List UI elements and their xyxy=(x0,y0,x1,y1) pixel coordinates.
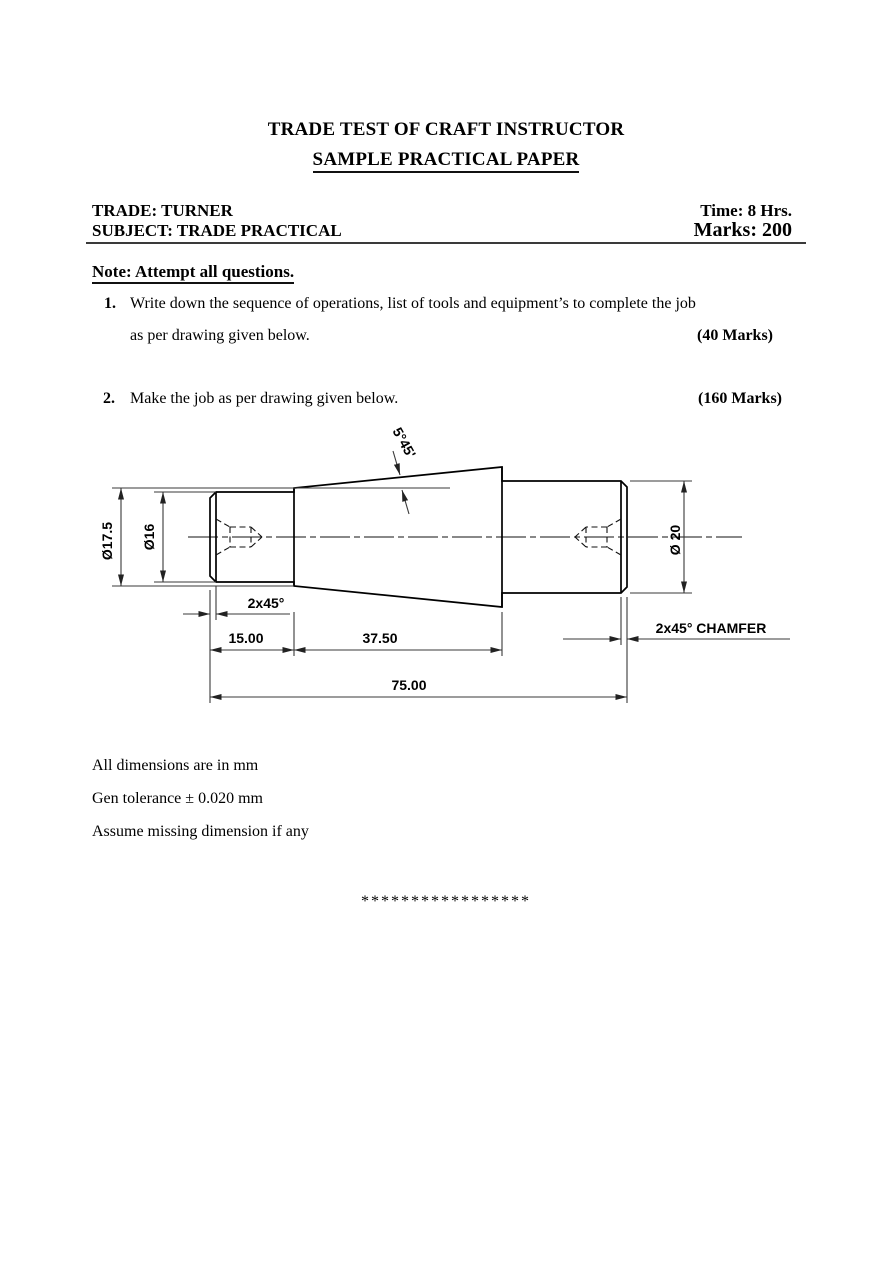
question-1-text-line1: Write down the sequence of operations, l… xyxy=(130,295,696,313)
question-1-text-line2: as per drawing given below. xyxy=(130,327,310,345)
question-1-number: 1. xyxy=(104,295,116,313)
chamfer-left-label: 2x45° xyxy=(248,595,285,611)
question-2-text: Make the job as per drawing given below. xyxy=(130,390,398,408)
trade-label: TRADE: TURNER xyxy=(92,201,233,221)
length-15-label: 15.00 xyxy=(228,630,263,646)
dim-length-75: 75.00 xyxy=(210,656,627,703)
footer-note-units: All dimensions are in mm xyxy=(92,757,258,775)
chamfer-right-label: 2x45° CHAMFER xyxy=(656,620,767,636)
page-title: TRADE TEST OF CRAFT INSTRUCTOR xyxy=(0,119,892,141)
time-label: Time: 8 Hrs. xyxy=(700,201,792,221)
question-2-number: 2. xyxy=(103,390,115,408)
subject-label: SUBJECT: TRADE PRACTICAL xyxy=(92,221,342,241)
footer-note-tolerance: Gen tolerance ± 0.020 mm xyxy=(92,790,263,808)
dia-16-label: Ø16 xyxy=(141,524,157,551)
dia-20-label: Ø 20 xyxy=(667,525,683,556)
header-divider xyxy=(86,242,806,244)
length-75-label: 75.00 xyxy=(391,677,426,693)
question-2-marks: (160 Marks) xyxy=(698,390,782,408)
question-1-marks: (40 Marks) xyxy=(697,327,773,345)
dim-taper-angle: 5°45' xyxy=(390,425,420,514)
document-page: TRADE TEST OF CRAFT INSTRUCTOR SAMPLE PR… xyxy=(0,0,892,1262)
marks-label: Marks: 200 xyxy=(694,219,792,242)
trade-time-row: TRADE: TURNER Time: 8 Hrs. xyxy=(0,201,892,221)
dim-length-15: 15.00 xyxy=(210,612,294,656)
dim-chamfer-left: 2x45° xyxy=(183,586,290,620)
subject-marks-row: SUBJECT: TRADE PRACTICAL Marks: 200 xyxy=(0,219,892,242)
note-line: Note: Attempt all questions. xyxy=(92,262,294,282)
length-37-5-label: 37.50 xyxy=(362,630,397,646)
dim-chamfer-right: 2x45° CHAMFER xyxy=(563,597,790,703)
end-separator: ***************** xyxy=(0,893,892,911)
dia-17-5-label: Ø17.5 xyxy=(99,522,115,560)
technical-drawing: Ø17.5 Ø16 Ø 20 5°45' 2x45° xyxy=(80,413,820,713)
dim-length-37-5: 37.50 xyxy=(294,612,502,656)
footer-note-assumption: Assume missing dimension if any xyxy=(92,823,309,841)
page-subtitle: SAMPLE PRACTICAL PAPER xyxy=(0,149,892,171)
